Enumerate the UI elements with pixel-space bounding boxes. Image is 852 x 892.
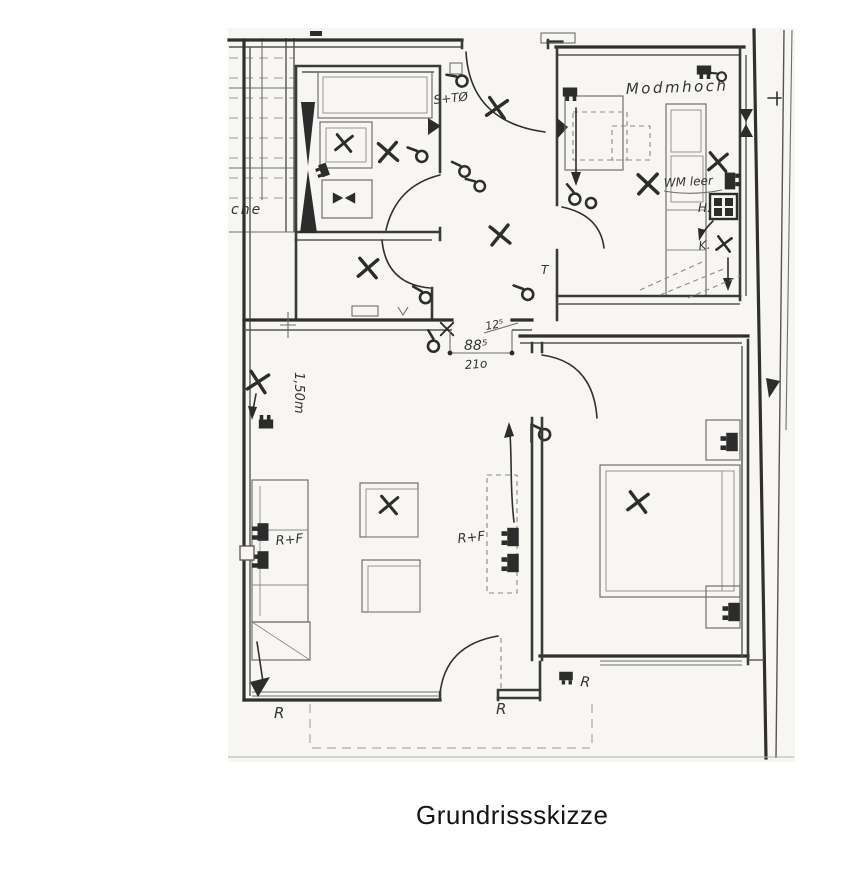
kitchen-header: Modmhoch xyxy=(626,76,729,98)
height-note: 1,50m xyxy=(291,372,306,414)
floorplan-drawing: che xyxy=(0,0,852,892)
antenna-label-left: R+F xyxy=(275,532,304,549)
caption: Grundrissskizze xyxy=(416,800,608,830)
washing-machine-label: WM leer xyxy=(663,173,714,190)
shutter-label-center: R xyxy=(496,700,506,718)
scanned-floorplan-page: che xyxy=(0,0,852,892)
shutter-label-left: R xyxy=(274,704,284,722)
dim-door-width: 88⁵ xyxy=(464,338,488,354)
dim-door-height: 21o xyxy=(464,356,488,372)
fridge-label: K. xyxy=(698,238,711,253)
antenna-label-mid: R+F xyxy=(457,529,486,547)
left-partial-label: che xyxy=(231,202,262,218)
scan-area xyxy=(228,28,795,762)
shutter-label-right: R xyxy=(580,674,591,691)
